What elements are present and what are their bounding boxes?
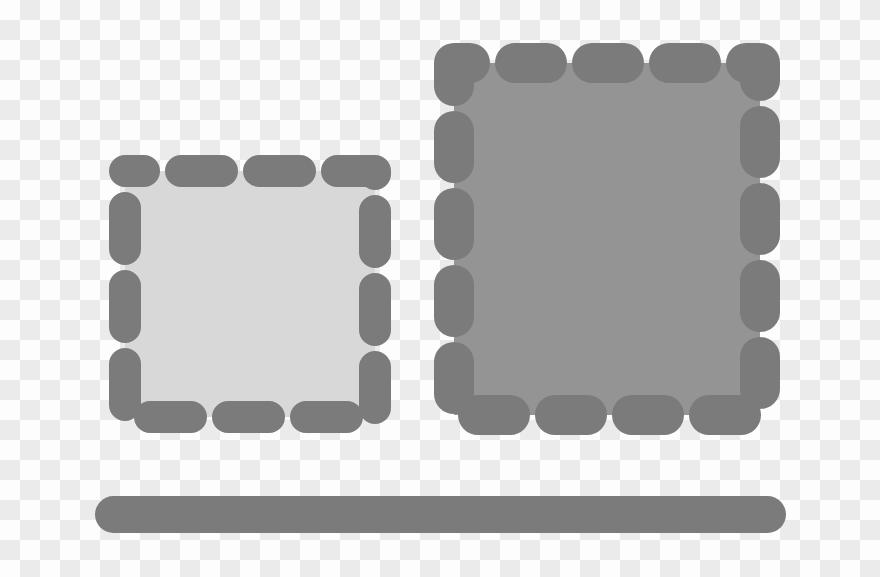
large-frame-fill — [454, 63, 760, 415]
clipart-artwork — [0, 0, 880, 577]
small-frame-fill — [125, 171, 375, 417]
large-dashed-frame — [454, 63, 760, 415]
small-dashed-frame — [125, 171, 375, 417]
rounded-horizontal-bar — [95, 496, 786, 533]
clipart-canvas — [0, 0, 880, 577]
